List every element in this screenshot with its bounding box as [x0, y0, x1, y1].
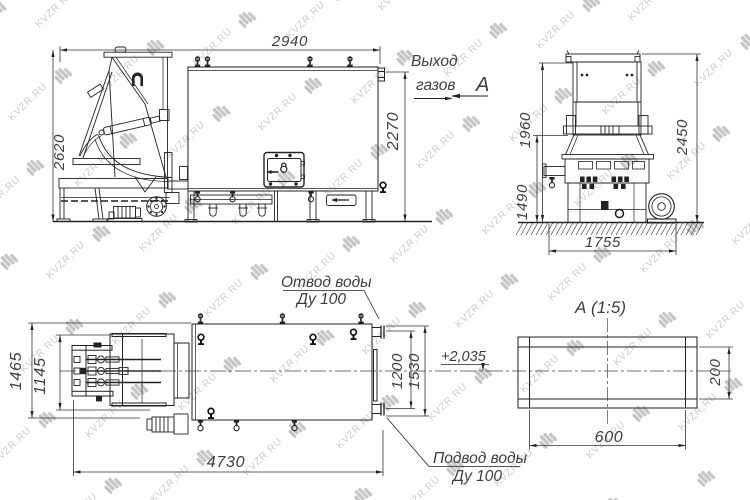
svg-text:Ду 100: Ду 100	[295, 291, 346, 308]
svg-text:1465: 1465	[8, 352, 25, 390]
svg-text:+2,035: +2,035	[441, 349, 487, 365]
svg-text:1145: 1145	[32, 357, 49, 394]
svg-text:1530: 1530	[406, 353, 423, 389]
svg-text:2940: 2940	[271, 33, 308, 50]
svg-text:Отвод воды: Отвод воды	[281, 274, 372, 291]
svg-text:А (1:5): А (1:5)	[574, 298, 626, 317]
svg-text:Выход: Выход	[411, 53, 458, 70]
svg-text:2450: 2450	[674, 119, 691, 156]
svg-text:600: 600	[595, 429, 624, 446]
svg-text:газов: газов	[416, 77, 456, 94]
svg-text:2270: 2270	[385, 112, 402, 151]
svg-text:4730: 4730	[207, 454, 245, 471]
svg-text:200: 200	[707, 358, 724, 386]
svg-text:Ду 100: Ду 100	[451, 468, 502, 485]
svg-text:1960: 1960	[517, 112, 534, 148]
svg-text:1755: 1755	[585, 234, 621, 251]
svg-text:1200: 1200	[389, 353, 406, 389]
svg-text:А: А	[475, 74, 489, 96]
svg-text:Подвод воды: Подвод воды	[433, 450, 528, 467]
svg-text:1490: 1490	[514, 184, 531, 220]
svg-text:2620: 2620	[51, 134, 68, 171]
